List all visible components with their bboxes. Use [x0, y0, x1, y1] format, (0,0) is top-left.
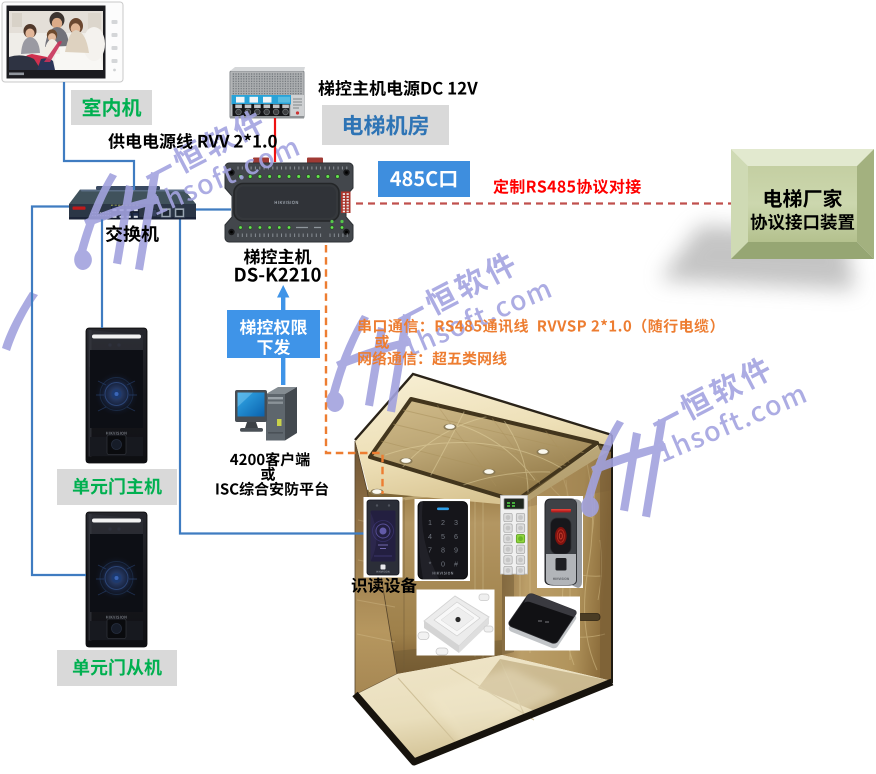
- svg-text:7: 7: [428, 546, 432, 555]
- svg-text:6: 6: [454, 532, 458, 541]
- svg-text:9: 9: [454, 546, 458, 555]
- svg-text:#: #: [454, 559, 458, 568]
- svg-text:5: 5: [441, 532, 445, 541]
- svg-text:*: *: [429, 559, 432, 568]
- svg-text:2: 2: [441, 518, 445, 527]
- svg-text:1: 1: [428, 518, 432, 527]
- svg-text:8: 8: [441, 546, 445, 555]
- svg-text:0: 0: [441, 559, 445, 568]
- svg-text:4: 4: [428, 532, 432, 541]
- svg-text:3: 3: [454, 518, 458, 527]
